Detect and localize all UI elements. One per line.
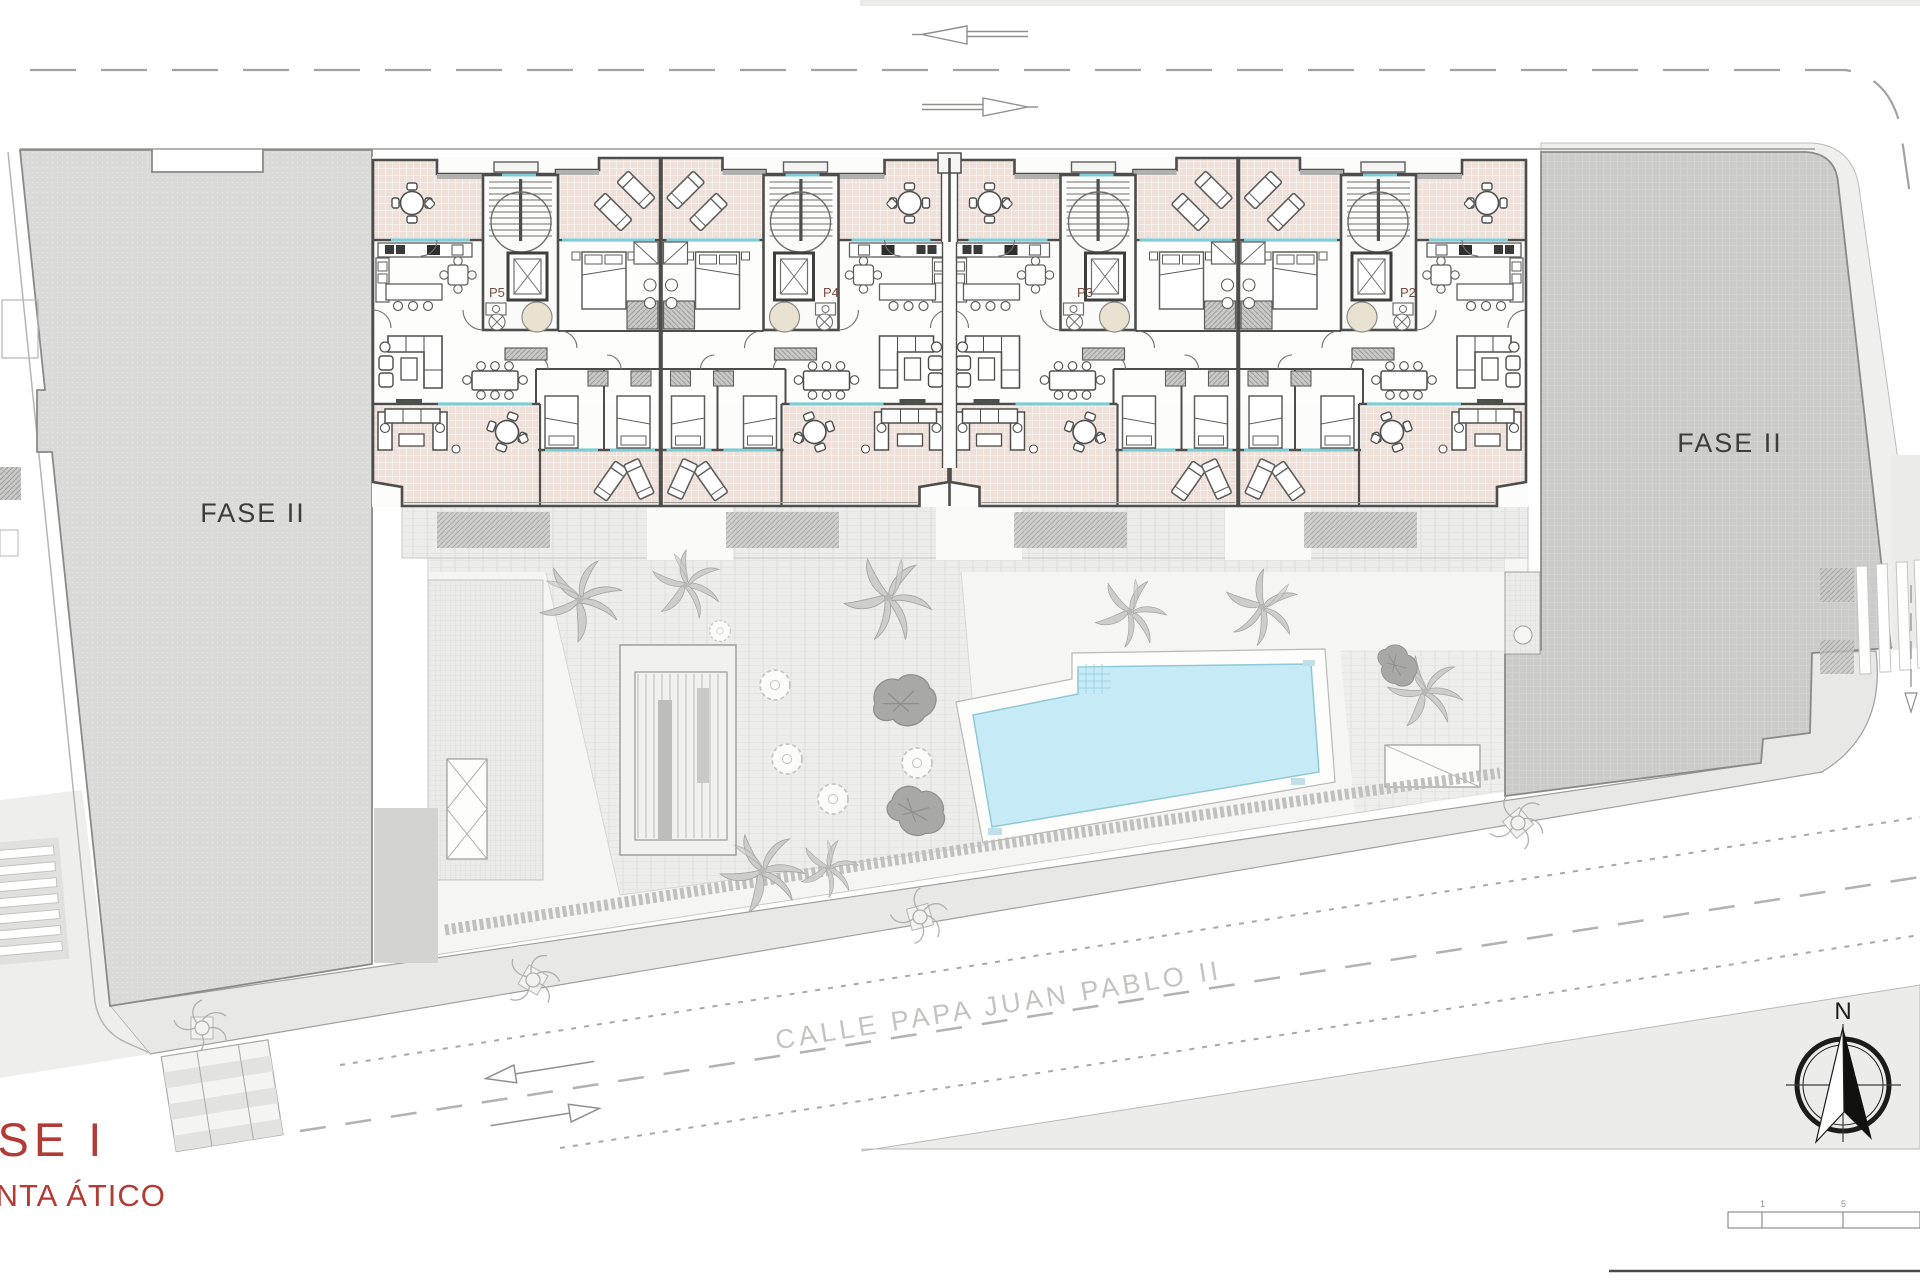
svg-text:5: 5 [1841, 1199, 1846, 1209]
svg-text:1: 1 [1760, 1199, 1765, 1209]
svg-text:PLANTA ÁTICO: PLANTA ÁTICO [0, 1178, 166, 1213]
svg-text:FASE II: FASE II [200, 498, 306, 528]
svg-text:P2: P2 [1400, 285, 1416, 300]
svg-text:N: N [1834, 998, 1851, 1025]
svg-text:P4: P4 [823, 285, 839, 300]
svg-text:FASE II: FASE II [1677, 428, 1783, 458]
svg-text:P5: P5 [489, 285, 505, 300]
svg-text:P3: P3 [1077, 285, 1093, 300]
svg-text:FASE I: FASE I [0, 1113, 106, 1166]
